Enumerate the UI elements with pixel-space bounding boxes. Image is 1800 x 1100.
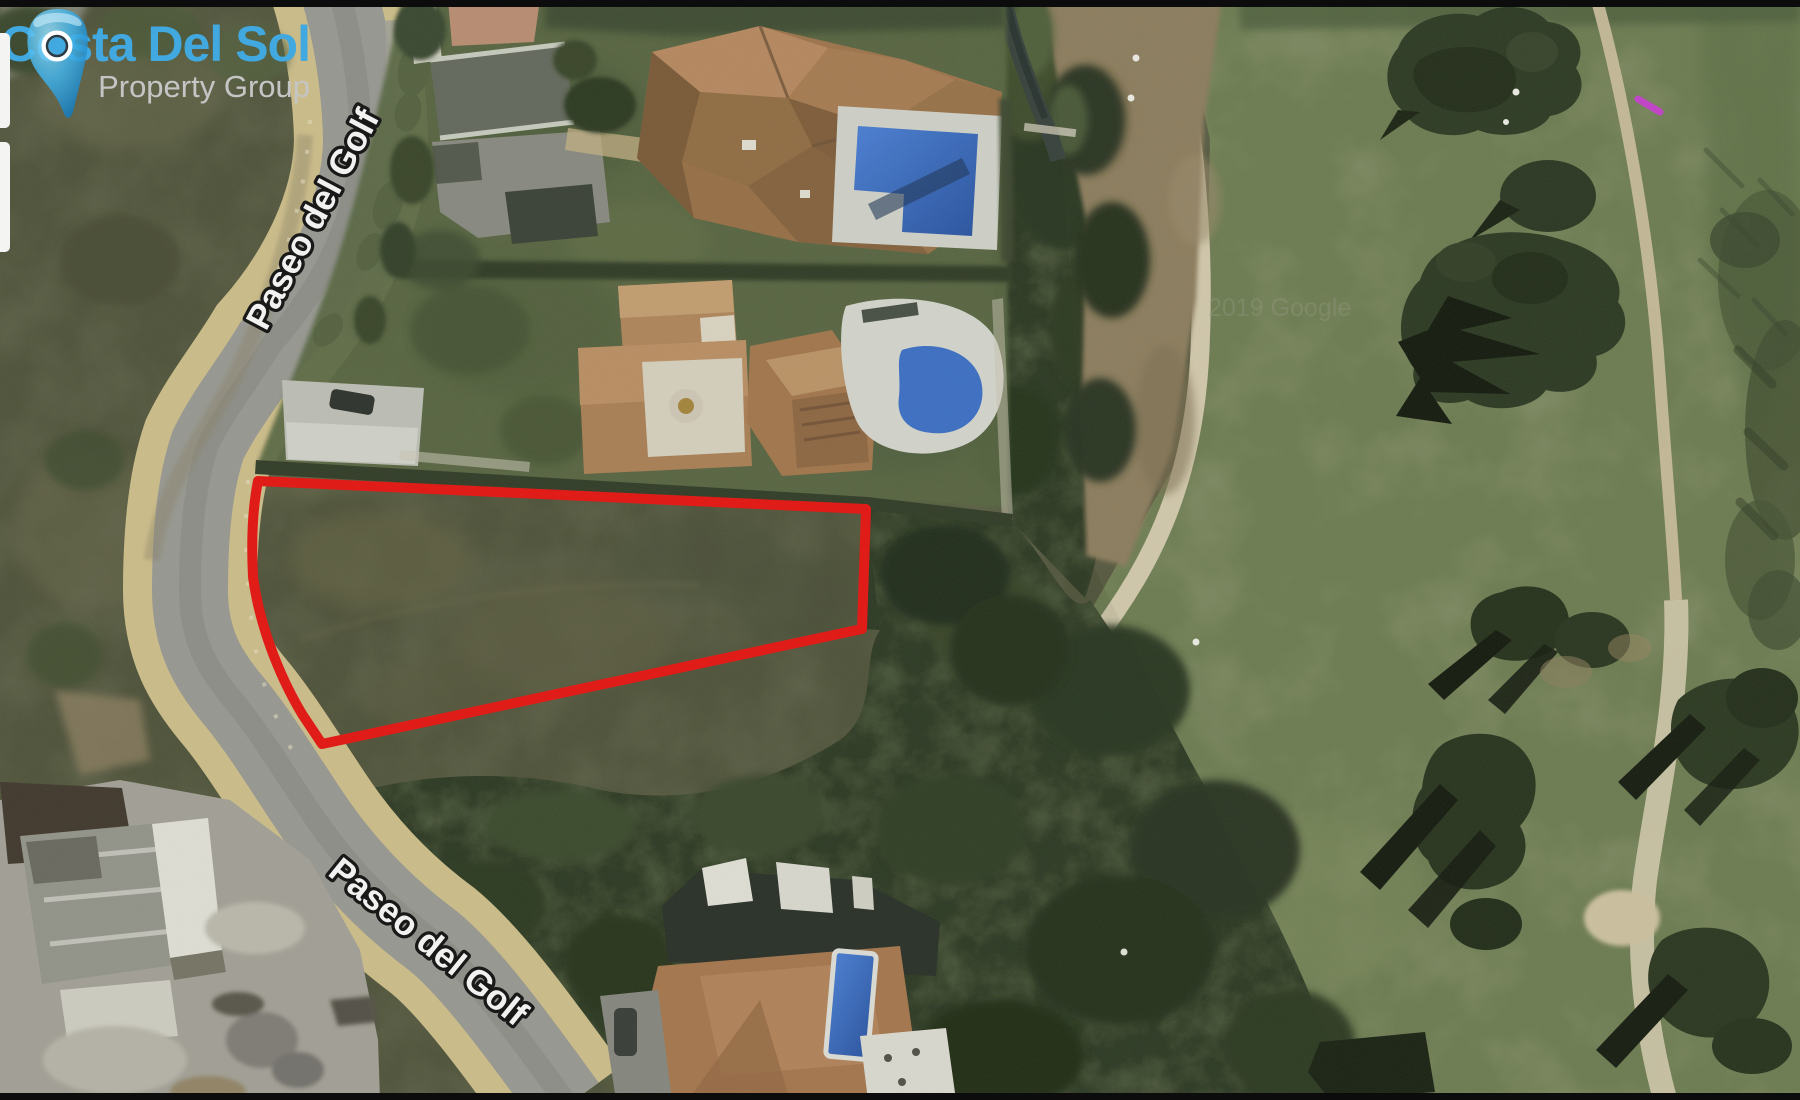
svg-text:Property Group: Property Group [98,69,310,104]
